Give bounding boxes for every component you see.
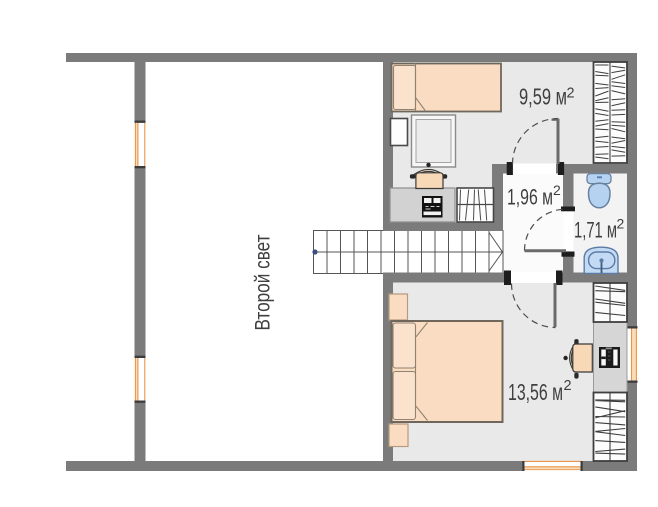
- svg-text:1,96 м: 1,96 м: [507, 185, 553, 210]
- svg-text:2: 2: [567, 86, 575, 102]
- svg-text:9,59 м: 9,59 м: [519, 84, 567, 110]
- svg-text:13,56 м: 13,56 м: [508, 379, 563, 405]
- svg-text:1,71 м: 1,71 м: [574, 218, 617, 243]
- svg-text:Второй свет: Второй свет: [251, 234, 275, 330]
- svg-text:2: 2: [617, 216, 625, 232]
- svg-text:2: 2: [564, 378, 572, 394]
- svg-text:2: 2: [553, 182, 561, 198]
